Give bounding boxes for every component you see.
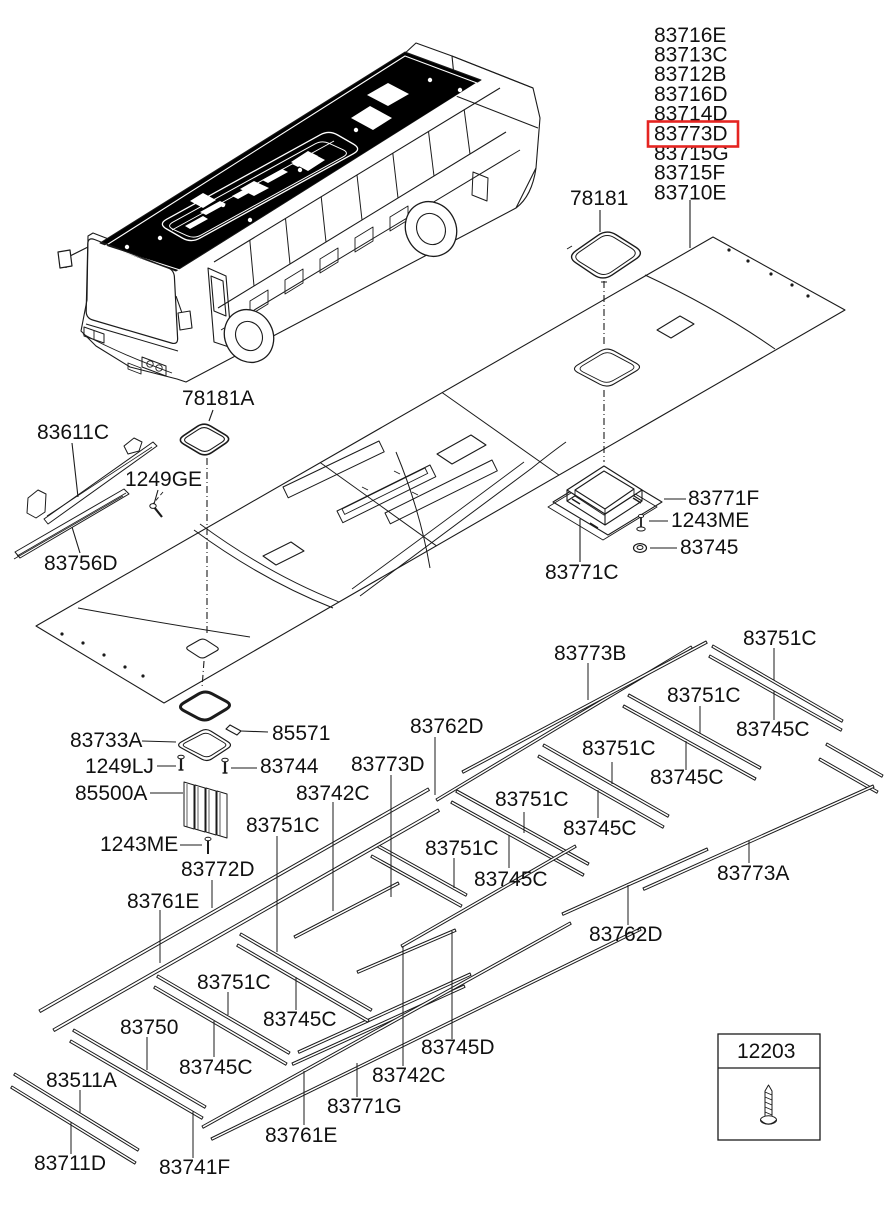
svg-text:78181A: 78181A — [182, 387, 254, 410]
svg-text:83751C: 83751C — [743, 627, 817, 650]
svg-text:83750: 83750 — [120, 1016, 178, 1039]
svg-text:1243ME: 1243ME — [671, 509, 749, 532]
svg-text:78181: 78181 — [570, 187, 628, 210]
svg-text:83761E: 83761E — [127, 890, 199, 913]
svg-text:83745: 83745 — [680, 536, 738, 559]
svg-text:83611C: 83611C — [37, 421, 109, 444]
svg-text:1249LJ: 1249LJ — [85, 755, 154, 778]
svg-text:83756D: 83756D — [44, 552, 118, 575]
svg-text:83741F: 83741F — [159, 1156, 230, 1179]
svg-text:83745C: 83745C — [563, 817, 637, 840]
svg-text:83751C: 83751C — [667, 684, 741, 707]
svg-text:83742C: 83742C — [296, 782, 370, 805]
svg-text:83751C: 83751C — [197, 971, 271, 994]
svg-text:83771G: 83771G — [327, 1095, 402, 1118]
svg-text:83744: 83744 — [260, 755, 319, 778]
svg-text:83745C: 83745C — [474, 868, 548, 891]
svg-text:83773B: 83773B — [554, 642, 626, 665]
svg-text:1243ME: 1243ME — [100, 833, 178, 856]
svg-text:83745C: 83745C — [263, 1008, 337, 1031]
svg-text:83745C: 83745C — [179, 1056, 253, 1079]
svg-text:85571: 85571 — [272, 722, 330, 745]
svg-text:83511A: 83511A — [46, 1069, 117, 1092]
svg-text:83751C: 83751C — [495, 788, 569, 811]
svg-text:83773D: 83773D — [351, 753, 425, 776]
svg-text:83745C: 83745C — [650, 766, 724, 789]
svg-text:83771C: 83771C — [545, 561, 619, 584]
svg-text:12203: 12203 — [737, 1040, 795, 1063]
svg-text:83745D: 83745D — [421, 1036, 495, 1059]
svg-text:83745C: 83745C — [736, 718, 810, 741]
svg-text:83733A: 83733A — [70, 729, 142, 752]
svg-text:83772D: 83772D — [181, 858, 255, 881]
svg-text:1249GE: 1249GE — [125, 468, 202, 491]
svg-text:83751C: 83751C — [425, 837, 499, 860]
svg-text:83751C: 83751C — [246, 814, 320, 837]
svg-text:83751C: 83751C — [582, 737, 656, 760]
svg-text:83711D: 83711D — [34, 1152, 106, 1175]
svg-text:85500A: 85500A — [75, 782, 147, 805]
svg-text:83771F: 83771F — [688, 487, 759, 510]
svg-text:83742C: 83742C — [372, 1064, 446, 1087]
svg-text:83761E: 83761E — [265, 1124, 337, 1147]
svg-text:83773A: 83773A — [717, 862, 789, 885]
svg-text:83762D: 83762D — [589, 923, 663, 946]
svg-text:83762D: 83762D — [410, 715, 484, 738]
